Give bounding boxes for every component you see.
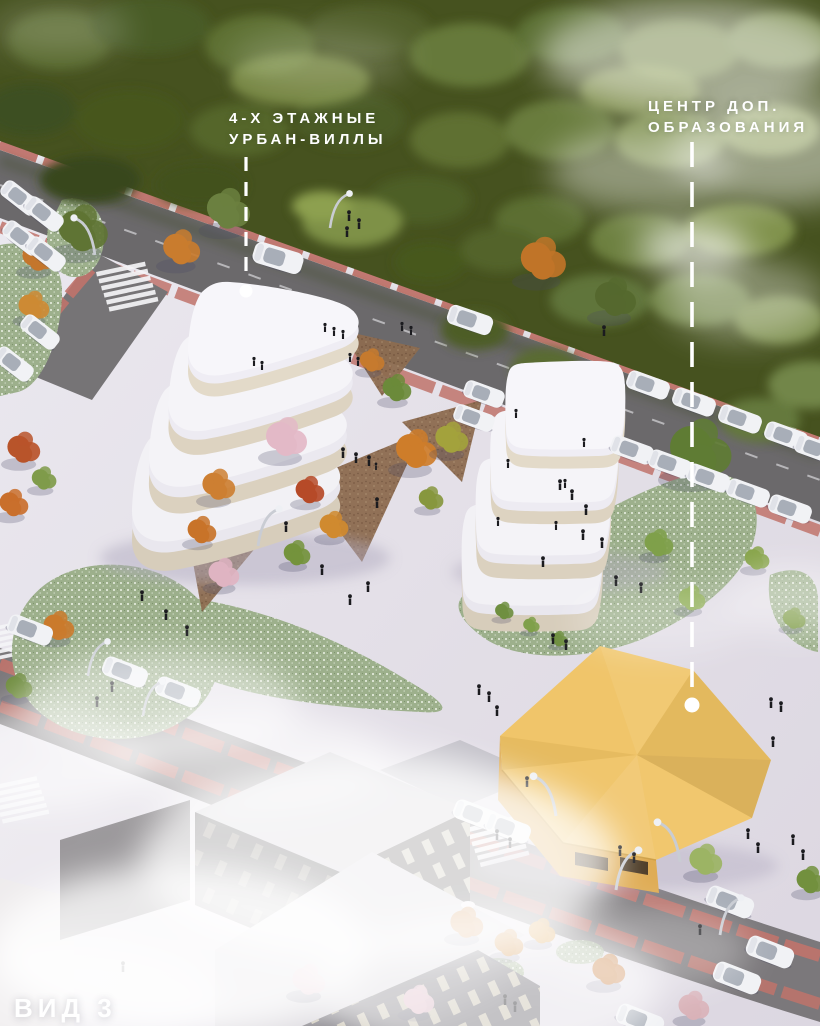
label-education-center: ЦЕНТР ДОП. ОБРАЗОВАНИЯ [648, 96, 808, 138]
label-urban-villas-line2: УРБАН-ВИЛЛЫ [229, 129, 387, 150]
leader-dot-villas [240, 285, 253, 298]
label-urban-villas: 4-Х ЭТАЖНЫЕ УРБАН-ВИЛЛЫ [229, 108, 387, 150]
architectural-render: 4-Х ЭТАЖНЫЕ УРБАН-ВИЛЛЫ ЦЕНТР ДОП. ОБРАЗ… [0, 0, 820, 1026]
label-education-center-line1: ЦЕНТР ДОП. [648, 96, 808, 117]
label-urban-villas-line1: 4-Х ЭТАЖНЫЕ [229, 108, 387, 129]
scene [0, 0, 820, 1026]
leader-dot-education [685, 698, 700, 713]
label-education-center-line2: ОБРАЗОВАНИЯ [648, 117, 808, 138]
view-label: ВИД 3 [14, 995, 117, 1021]
